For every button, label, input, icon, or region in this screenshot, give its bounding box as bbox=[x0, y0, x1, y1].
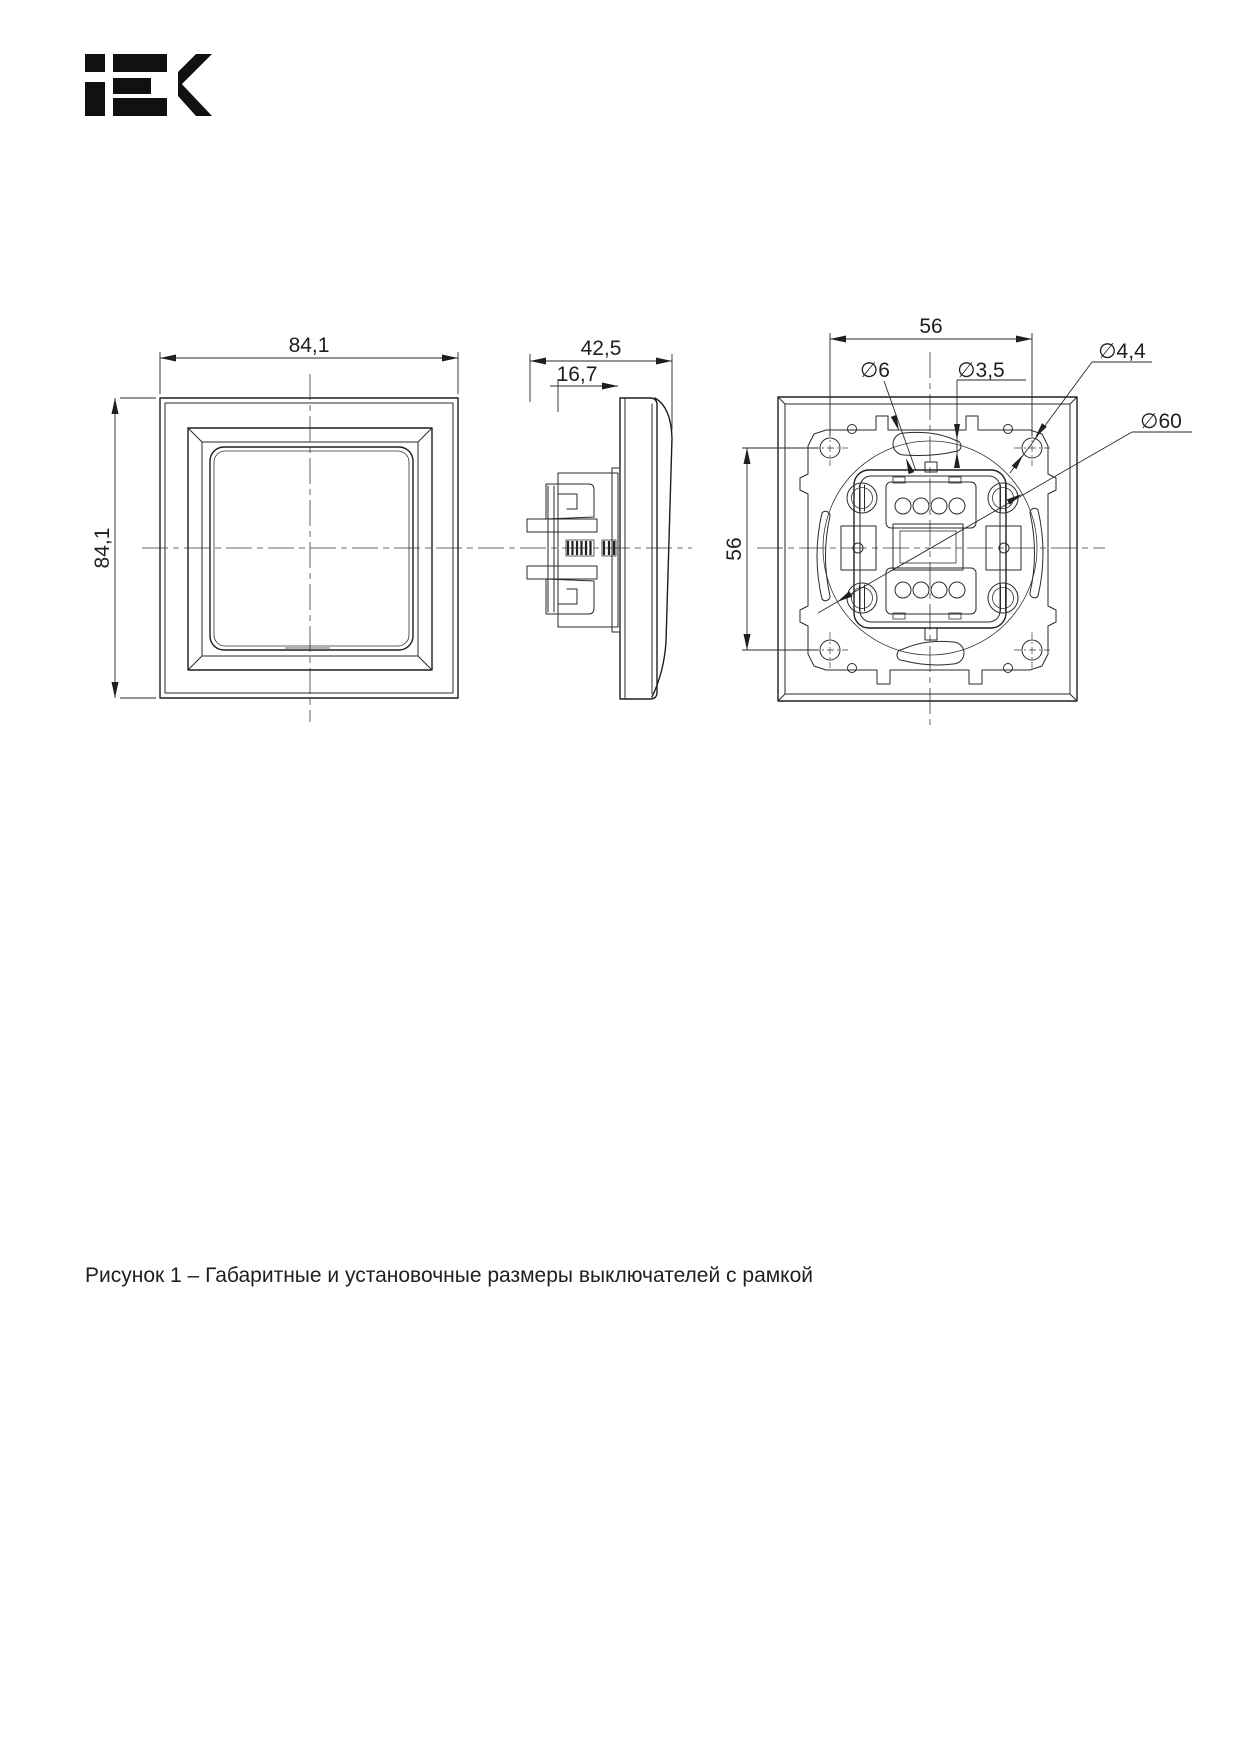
callout-dia-mount-circle: ∅60 bbox=[818, 410, 1192, 613]
rear-view: 56 56 ∅6 ∅3,5 bbox=[723, 315, 1192, 728]
front-width-label: 84,1 bbox=[289, 334, 330, 357]
logo-e-top bbox=[113, 54, 167, 72]
dia-slot-wide-label: ∅6 bbox=[860, 359, 890, 382]
dim-rear-spacing-left: 56 bbox=[723, 448, 818, 650]
side-mechanism bbox=[527, 468, 620, 632]
logo-e-bottom bbox=[113, 98, 167, 116]
dim-side-depth: 42,5 bbox=[530, 337, 672, 430]
terminal-block-bottom bbox=[886, 568, 976, 619]
dim-front-width: 84,1 bbox=[160, 334, 458, 394]
iek-logo bbox=[85, 54, 212, 116]
callout-dia-frame-hole: ∅4,4 bbox=[1010, 340, 1152, 473]
side-key-profile bbox=[652, 398, 672, 697]
terminal-block-top bbox=[886, 477, 976, 528]
callout-dia-slot-narrow: ∅3,5 bbox=[954, 359, 1026, 468]
logo-i-dot bbox=[85, 54, 105, 72]
side-mech-depth-label: 16,7 bbox=[557, 363, 598, 386]
side-depth-label: 42,5 bbox=[581, 337, 622, 360]
side-view: 42,5 16,7 bbox=[527, 337, 672, 699]
front-view: 84,1 84,1 bbox=[91, 334, 692, 722]
dia-slot-narrow-label: ∅3,5 bbox=[957, 359, 1005, 382]
logo-k-upper bbox=[178, 54, 212, 88]
front-height-label: 84,1 bbox=[91, 528, 114, 569]
logo-k-lower bbox=[178, 80, 212, 116]
document-page: 84,1 84,1 bbox=[0, 0, 1243, 1748]
figure-caption: Рисунок 1 – Габаритные и установочные ра… bbox=[85, 1264, 813, 1287]
rear-spacing-left-label: 56 bbox=[723, 537, 746, 560]
keyhole-slot-bottom bbox=[897, 641, 964, 665]
dim-side-mech-depth: 16,7 bbox=[550, 363, 618, 412]
dia-frame-hole-label: ∅4,4 bbox=[1098, 340, 1146, 363]
logo-e-mid bbox=[113, 78, 151, 94]
logo-i-stem bbox=[85, 82, 105, 116]
rear-spacing-top-label: 56 bbox=[919, 315, 942, 338]
technical-drawing: 84,1 84,1 bbox=[0, 0, 1243, 1748]
dia-mount-circle-label: ∅60 bbox=[1140, 410, 1182, 433]
rear-mechanism bbox=[841, 462, 1021, 640]
